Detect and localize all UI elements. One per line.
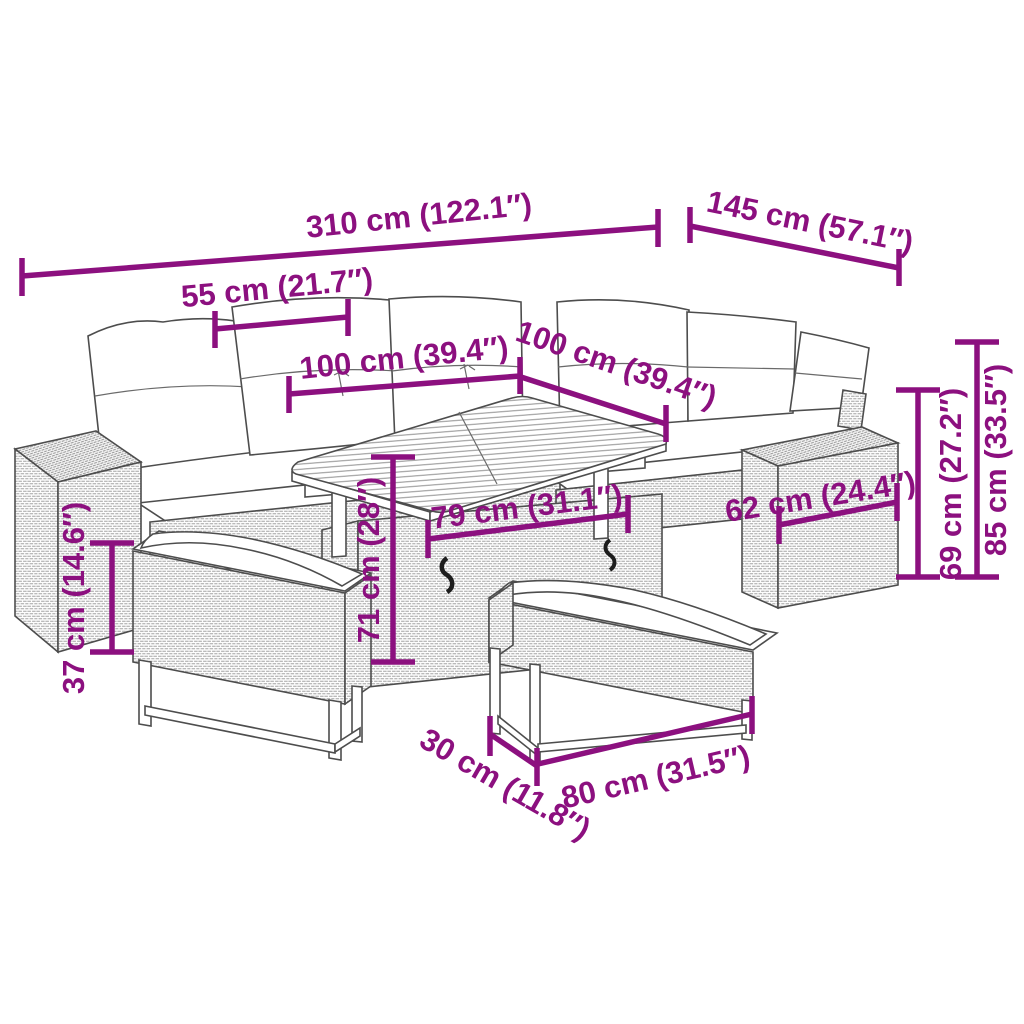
left-bench [133, 531, 371, 760]
right-armrest-pillar [838, 390, 866, 430]
dimension-total-depth: 145 cm (57.1″) [690, 184, 916, 286]
dimension-label-table-height: 71 cm (28″) [351, 477, 386, 644]
dimension-label-total-height: 85 cm (33.5″) [978, 364, 1013, 556]
dimension-bench-length: 80 cm (31.5″) [538, 696, 753, 815]
dimension-label-bench-height: 37 cm (14.6″) [56, 502, 91, 694]
dimension-label-total-length: 310 cm (122.1″) [304, 186, 533, 245]
right-bench [489, 581, 777, 764]
dimension-label-seat-unit-height: 69 cm (27.2″) [933, 388, 968, 580]
dimension-diagram: 310 cm (122.1″) 145 cm (57.1″) 55 cm (21… [0, 0, 1024, 1024]
furniture-dimension-canvas: 310 cm (122.1″) 145 cm (57.1″) 55 cm (21… [0, 0, 1024, 1024]
